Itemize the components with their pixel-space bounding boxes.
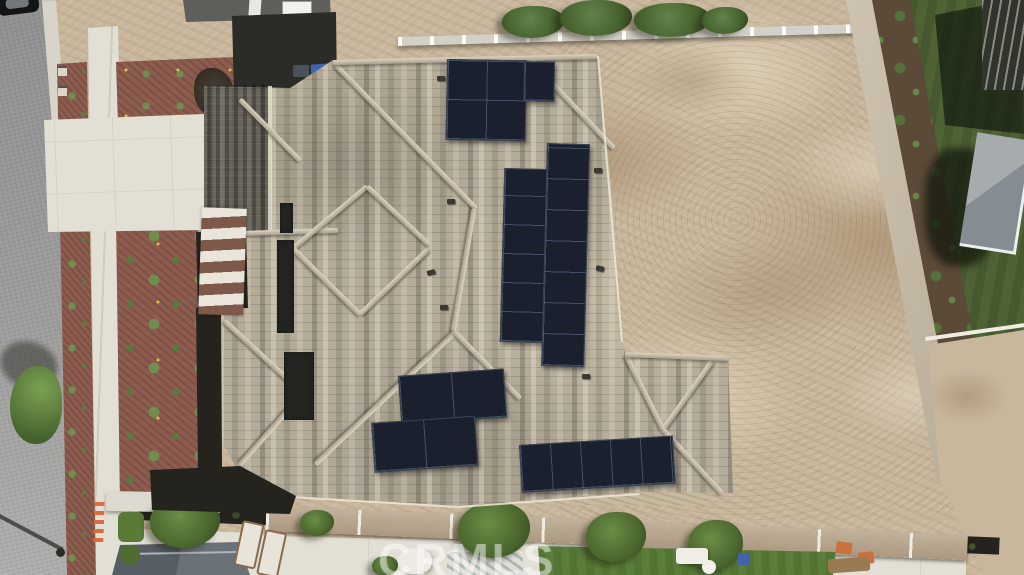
roof-vent: [594, 168, 602, 173]
solar-panel-row: [371, 416, 478, 473]
crmls-watermark: CRMLS: [378, 533, 557, 575]
turf-patch: [120, 545, 140, 565]
patio-table: [702, 560, 716, 574]
courtyard-shadow: [280, 203, 293, 233]
courtyard-shadow: [284, 352, 314, 420]
street-tree: [10, 366, 62, 444]
streetlight-base: [56, 548, 65, 557]
gutter-line: [268, 86, 272, 232]
gray-trash-bin: [293, 65, 309, 77]
car-roof: [5, 0, 29, 9]
utility-box: [58, 66, 67, 76]
slatted-pergola: [982, 0, 1024, 90]
turf-patch: [118, 512, 144, 542]
orange-chair: [835, 541, 853, 555]
wood-bench: [828, 557, 871, 574]
solar-panel-column: [541, 143, 590, 367]
solar-panel-row: [519, 436, 676, 493]
utility-box: [58, 86, 67, 96]
roof-vent: [582, 374, 590, 379]
roof-vent: [440, 305, 448, 310]
solar-panel: [523, 61, 555, 102]
orange-ladder: [93, 498, 105, 542]
striped-entry-walkway: [198, 207, 247, 316]
solar-panel-block: [446, 59, 527, 141]
courtyard-shadow: [277, 240, 294, 333]
roof-vent: [447, 199, 455, 204]
aerial-photo: CRMLS: [0, 0, 1024, 575]
blue-chair: [738, 553, 750, 565]
roof-vent: [437, 76, 445, 81]
